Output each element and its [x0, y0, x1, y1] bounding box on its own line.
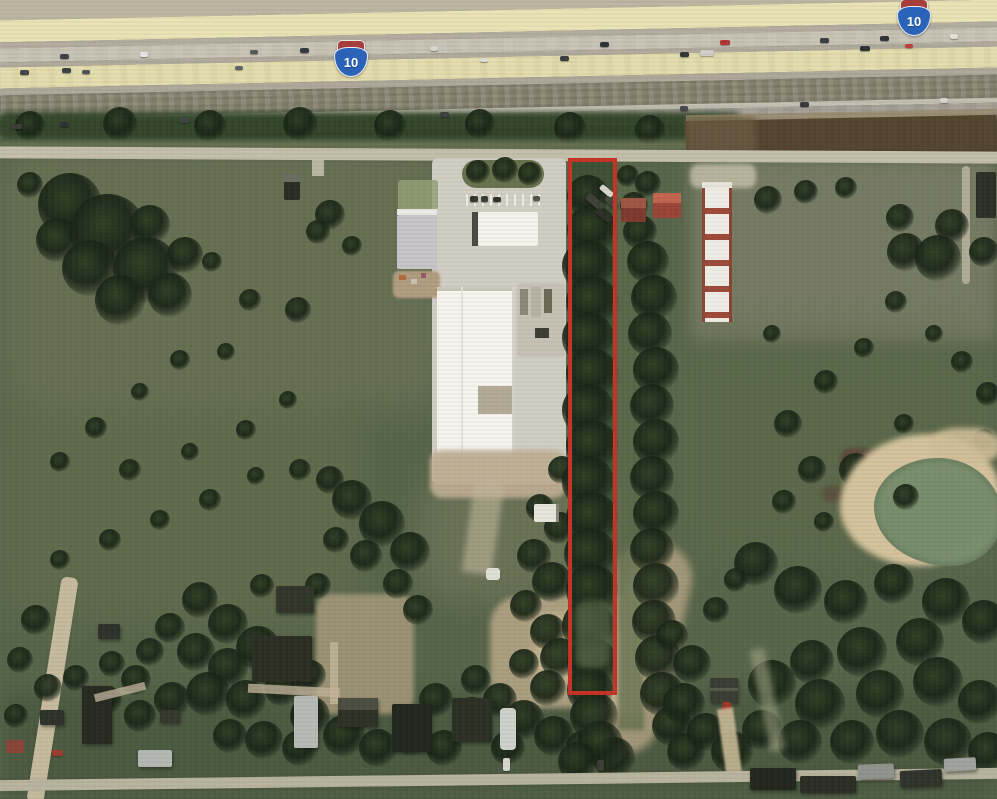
red-structure: [6, 740, 24, 753]
tree: [119, 459, 141, 481]
tree: [962, 600, 997, 644]
parked-car: [493, 197, 501, 202]
vehicle: [860, 46, 870, 51]
tree: [213, 719, 247, 753]
tree: [403, 595, 433, 625]
tree: [893, 484, 919, 510]
yard-debris: [421, 273, 426, 278]
tree: [772, 490, 796, 514]
shield-route-number: 10: [334, 47, 368, 77]
tree: [885, 291, 907, 313]
tree: [155, 613, 185, 643]
tree: [774, 410, 802, 438]
roof-edge: [437, 287, 515, 291]
vehicle: [880, 36, 889, 41]
tree: [935, 209, 969, 243]
equipment: [535, 328, 549, 338]
vehicle: [60, 54, 69, 59]
tree: [239, 289, 261, 311]
vehicle: [600, 42, 609, 47]
pond-shade: [884, 470, 994, 556]
tree: [794, 180, 818, 204]
tree: [925, 325, 943, 343]
tree: [876, 710, 924, 758]
tree: [283, 107, 317, 141]
tree: [465, 109, 495, 139]
vehicle: [60, 122, 69, 127]
tree: [466, 160, 490, 184]
vehicle: [20, 70, 29, 75]
vehicle: [720, 40, 730, 45]
tree: [323, 527, 349, 553]
tree: [814, 512, 834, 532]
yard-debris: [411, 279, 417, 284]
tree: [976, 382, 997, 406]
tree: [136, 638, 164, 666]
vehicle: [480, 58, 488, 62]
tree: [913, 657, 963, 707]
vehicle: [503, 758, 510, 771]
tree: [958, 680, 997, 724]
vehicle: [235, 66, 243, 70]
vehicle: [950, 34, 958, 39]
tree: [50, 550, 70, 570]
tree: [663, 683, 705, 725]
vehicle: [62, 68, 71, 73]
parcel-outline: [568, 158, 617, 695]
vehicle: [560, 56, 569, 61]
tree: [103, 107, 137, 141]
tree: [509, 649, 539, 679]
tree: [99, 651, 125, 677]
tree: [186, 672, 230, 716]
vehicle: [905, 44, 913, 48]
shed-roof: [534, 504, 558, 522]
tree: [279, 391, 297, 409]
tank: [531, 287, 541, 317]
tree: [969, 237, 997, 267]
tree: [130, 205, 170, 245]
vehicle: [820, 38, 829, 43]
tree: [4, 704, 28, 728]
tree: [342, 236, 362, 256]
tree: [95, 275, 145, 325]
roof-ridge: [338, 698, 378, 710]
roof-inset: [478, 386, 514, 414]
tree: [181, 443, 199, 461]
tree: [390, 532, 430, 572]
tree: [17, 172, 43, 198]
parked-car: [481, 196, 488, 202]
tree: [673, 645, 711, 683]
vehicle: [800, 102, 809, 107]
tree: [530, 670, 566, 706]
tree: [886, 204, 914, 232]
tree: [306, 220, 330, 244]
red-car: [52, 750, 63, 756]
tree: [148, 273, 192, 317]
vehicle: [12, 124, 22, 129]
tree: [167, 237, 203, 273]
billboard-structure: [284, 174, 300, 182]
tree: [835, 177, 857, 199]
tree: [99, 529, 121, 551]
metal-roof-house: [294, 696, 318, 748]
roof-edge: [512, 287, 515, 457]
tree: [250, 574, 274, 598]
tree: [656, 620, 688, 652]
tree: [350, 540, 382, 572]
tree: [754, 186, 782, 214]
tree: [7, 647, 33, 673]
vehicle: [940, 98, 948, 103]
shed-edge: [556, 504, 559, 522]
tree: [798, 456, 826, 484]
tree: [50, 452, 70, 472]
metal-roof-house: [858, 763, 895, 779]
vehicle: [680, 106, 688, 111]
tree: [951, 351, 973, 373]
tree: [703, 597, 729, 623]
tree: [724, 568, 748, 592]
white-building: [478, 212, 538, 246]
house-roof: [392, 704, 432, 752]
tree: [170, 350, 190, 370]
truck: [700, 50, 714, 56]
tree: [245, 721, 283, 759]
vehicle: [440, 112, 449, 117]
tree: [199, 489, 221, 511]
house-roof: [98, 624, 120, 639]
tree: [830, 720, 874, 764]
shield-route-number: 10: [897, 6, 931, 36]
tree: [247, 467, 265, 485]
tree: [194, 110, 226, 142]
tree: [285, 297, 311, 323]
house-roof: [900, 769, 943, 788]
tree: [374, 110, 406, 142]
vehicle: [82, 70, 90, 74]
vehicle: [140, 52, 148, 57]
tree: [124, 700, 156, 732]
tree: [778, 720, 822, 764]
shed-roof: [486, 568, 500, 580]
metal-roof-house: [944, 757, 977, 772]
yard-debris: [399, 275, 406, 280]
parked-car: [533, 196, 540, 201]
house-roof: [276, 586, 314, 613]
roof-ridge: [653, 193, 681, 203]
house-roof: [160, 710, 180, 723]
tree: [289, 459, 311, 481]
house-roof: [252, 636, 312, 682]
tree: [874, 564, 914, 604]
tree: [824, 580, 868, 624]
tank: [544, 289, 552, 313]
tree: [854, 338, 874, 358]
vehicle: [250, 50, 258, 54]
tank: [520, 289, 528, 315]
tree: [383, 569, 413, 599]
tree: [894, 414, 914, 434]
storage-building: [702, 188, 732, 322]
interstate-10-shield: 10: [897, 0, 931, 36]
tree: [21, 605, 51, 635]
parked-car: [470, 196, 478, 202]
fenced-pen: [398, 180, 438, 210]
tree: [763, 325, 781, 343]
house-roof: [40, 710, 64, 725]
tree: [177, 633, 215, 671]
rv-trailer: [500, 708, 516, 750]
vehicle: [597, 760, 604, 771]
tree: [814, 370, 838, 394]
terrain-feature-layer: [0, 0, 997, 799]
tree: [790, 640, 834, 684]
roof-ridge: [710, 688, 738, 691]
driveway-stub: [312, 160, 324, 176]
house-roof: [452, 698, 492, 742]
tree: [202, 252, 222, 272]
tree: [150, 510, 170, 530]
tower-structure: [976, 172, 996, 218]
house-roof: [750, 768, 796, 790]
vehicle: [430, 46, 438, 51]
house-roof: [800, 776, 856, 793]
vehicle: [300, 48, 309, 53]
tree: [131, 383, 149, 401]
roof-ridge: [621, 198, 646, 208]
driveway: [330, 642, 338, 704]
vehicle: [180, 118, 189, 123]
interstate-10-shield: 10: [334, 40, 368, 77]
tree: [85, 417, 107, 439]
tree: [34, 674, 62, 702]
gray-building: [397, 215, 437, 269]
roof-seam: [461, 287, 463, 457]
tree: [36, 218, 80, 262]
tree: [518, 162, 542, 186]
tree: [217, 343, 235, 361]
tree: [492, 157, 518, 183]
vehicle: [680, 52, 689, 57]
tree: [236, 420, 256, 440]
satellite-map[interactable]: 10 10: [0, 0, 997, 799]
warehouse-roof: [437, 287, 515, 457]
tree: [774, 566, 822, 614]
metal-roof-house: [138, 750, 172, 767]
